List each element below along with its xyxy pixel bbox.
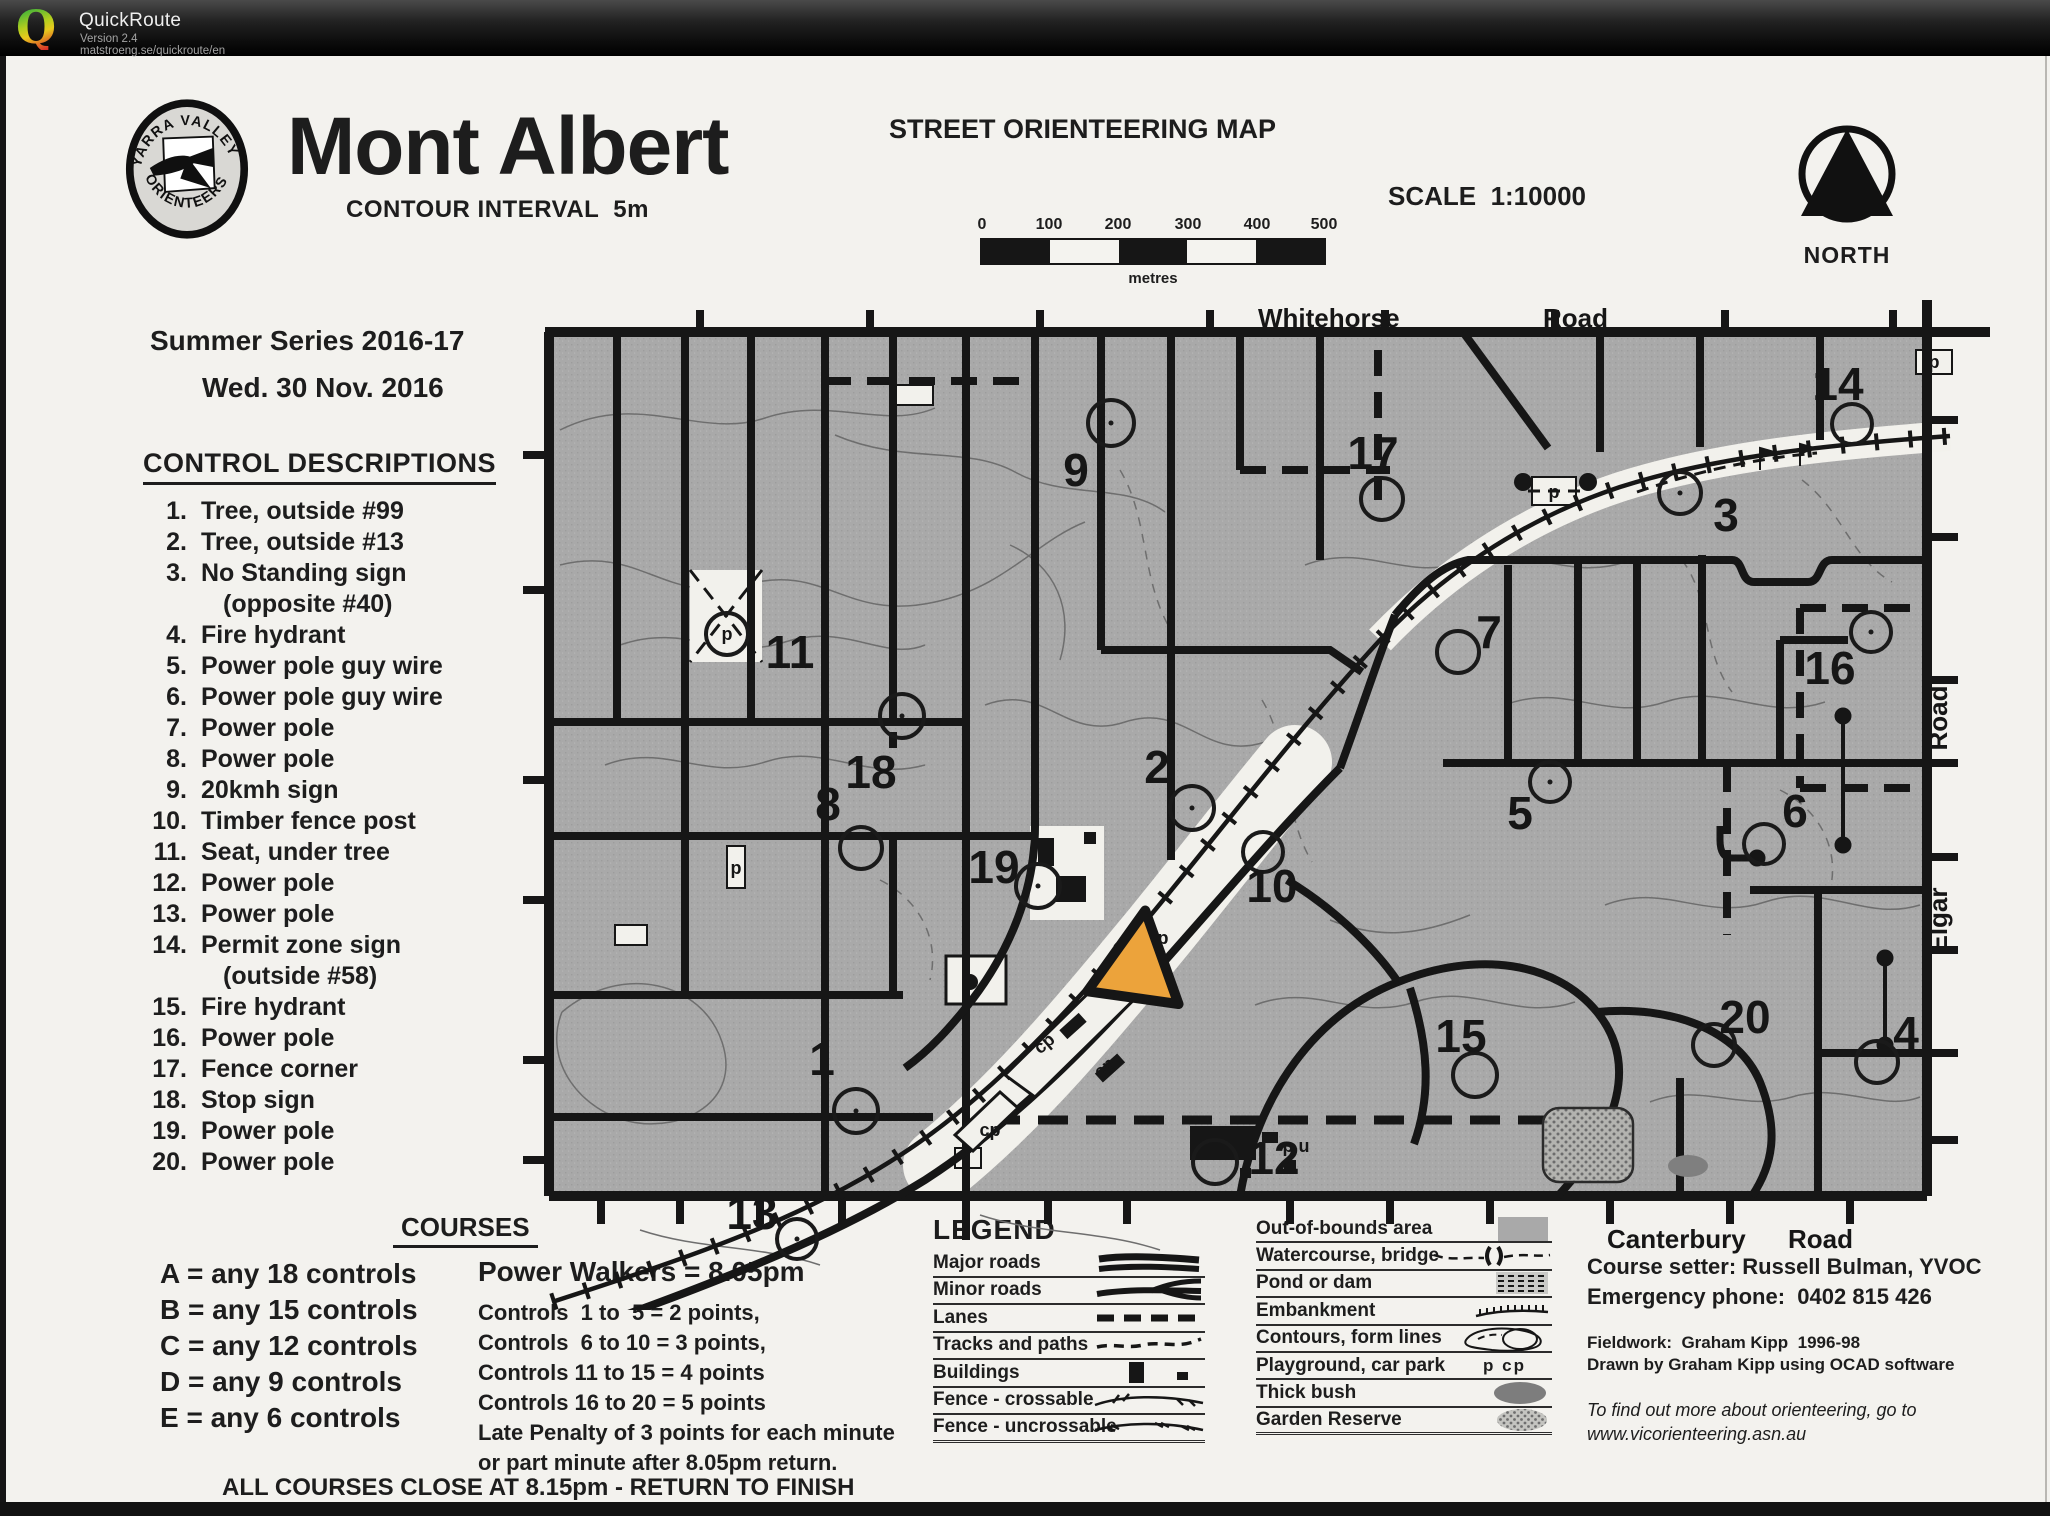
svg-text:8: 8 (815, 778, 841, 830)
app-title: QuickRoute (79, 10, 181, 32)
north-arrow-icon (1789, 116, 1905, 238)
yarra-valley-orienteers-logo: YARRA VALLEY ORIENTEERS (125, 98, 249, 240)
fieldwork-credit: Fieldwork: Graham Kipp 1996-98 (1587, 1332, 1982, 1354)
svg-text:Road: Road (1923, 686, 1953, 751)
legend-symbol-tracks (1093, 1333, 1205, 1359)
scale-text: SCALE 1:10000 (1388, 181, 1586, 212)
svg-text:1: 1 (809, 1033, 835, 1085)
legend-symbol-contours (1432, 1326, 1552, 1351)
svg-text:p u: p u (1283, 1136, 1310, 1156)
more-info-line2: www.vicorienteering.asn.au (1587, 1422, 1982, 1446)
course-list: A = any 18 controls B = any 15 controls … (160, 1256, 418, 1436)
north-label: NORTH (1789, 242, 1905, 269)
contour-interval: CONTOUR INTERVAL 5m (346, 196, 649, 224)
orienteering-map-canvas[interactable]: 1 2 3 4 5 6 7 8 9 10 11 12 13 14 15 16 1… (430, 288, 2050, 1310)
scan-edge-left (0, 56, 6, 1516)
svg-text:20: 20 (1719, 991, 1770, 1043)
whitehorse-road-label: Whitehorse (1258, 303, 1400, 333)
quickroute-logo-icon: Q (16, 4, 56, 50)
app-url: matstroeng.se/quickroute/en (80, 45, 225, 57)
svg-text:9: 9 (1063, 444, 1089, 496)
drawn-credit: Drawn by Graham Kipp using OCAD software (1587, 1354, 1982, 1376)
svg-text:Road: Road (1543, 303, 1608, 333)
svg-text:3: 3 (1713, 489, 1739, 541)
svg-text:6: 6 (1782, 785, 1808, 837)
svg-text:5: 5 (1507, 787, 1533, 839)
svg-text:15: 15 (1435, 1010, 1486, 1062)
more-info-line1: To find out more about orienteering, go … (1587, 1398, 1982, 1422)
svg-text:10: 10 (1246, 860, 1297, 912)
svg-text:Road: Road (1788, 1224, 1853, 1254)
legend-symbol-fence-uncrossable (1093, 1415, 1205, 1440)
series-title: Summer Series 2016-17 (150, 325, 464, 357)
svg-text:p: p (1158, 928, 1169, 948)
scale-bar-unit: metres (980, 270, 1326, 287)
svg-text:p: p (722, 624, 733, 644)
elgar-road-label: Elgar (1923, 887, 1953, 952)
svg-text:4: 4 (1893, 1007, 1919, 1059)
legend-symbol-playground-carpark: p cp (1483, 1353, 1552, 1378)
legend-symbol-thick-bush (1432, 1380, 1552, 1405)
svg-text:2: 2 (1144, 741, 1170, 793)
svg-text:7: 7 (1476, 606, 1502, 658)
svg-text:p: p (1549, 482, 1560, 502)
closing-notice: ALL COURSES CLOSE AT 8.15pm - RETURN TO … (222, 1474, 855, 1502)
scan-edge-bottom (0, 1502, 2050, 1516)
svg-text:14: 14 (1812, 358, 1864, 410)
svg-text:16: 16 (1804, 642, 1855, 694)
svg-text:17: 17 (1347, 427, 1398, 479)
legend-symbol-fence-crossable (1093, 1388, 1205, 1414)
canterbury-road-label: Canterbury (1607, 1224, 1746, 1254)
scale-bar: 0 100 200 300 400 500 metres (980, 216, 1328, 296)
legend-symbol-garden-reserve (1432, 1408, 1552, 1432)
scoring-rules: Controls 1 to 5 = 2 points, Controls 6 t… (478, 1298, 895, 1478)
app-version: Version 2.4 (80, 33, 138, 45)
event-date: Wed. 30 Nov. 2016 (202, 372, 444, 404)
scale-bar-blocks (980, 238, 1326, 265)
svg-text:19: 19 (968, 841, 1019, 893)
svg-text:13: 13 (726, 1187, 777, 1239)
app-titlebar: Q QuickRoute Version 2.4 matstroeng.se/q… (0, 0, 2050, 56)
svg-text:p: p (731, 858, 742, 878)
svg-text:18: 18 (845, 746, 896, 798)
svg-text:11: 11 (766, 626, 815, 678)
svg-text:cp: cp (979, 1120, 1000, 1140)
map-type-heading: STREET ORIENTEERING MAP (889, 114, 1276, 145)
map-title: Mont Albert (287, 100, 728, 194)
legend-symbol-buildings (1093, 1360, 1205, 1386)
svg-text:p: p (1929, 352, 1940, 372)
